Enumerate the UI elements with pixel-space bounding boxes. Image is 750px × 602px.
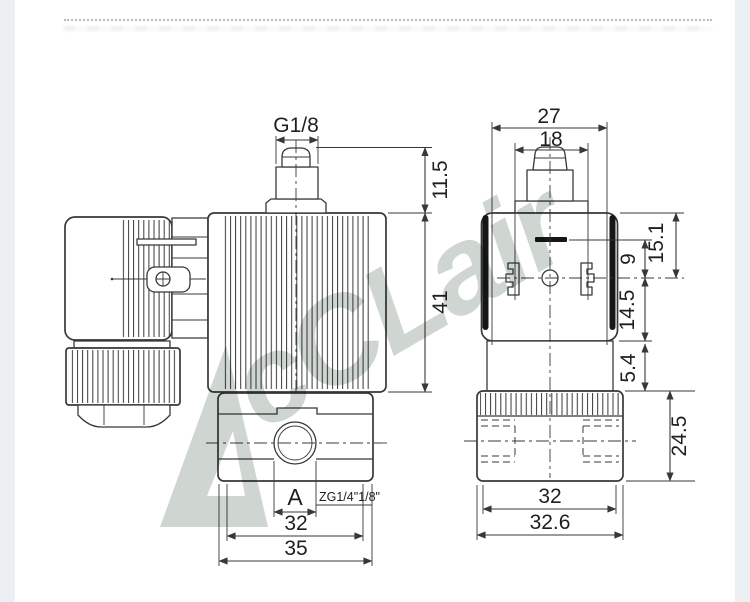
- din-connector-side: [65, 217, 208, 427]
- spade-terminal: [137, 239, 196, 245]
- fitting-collar: [276, 167, 318, 199]
- port-a-label: A: [287, 484, 303, 510]
- dim-15-1-label: 15.1: [645, 223, 668, 264]
- dim-9-label: 9: [617, 253, 640, 265]
- thread-note-label: ZG1/4"1/8": [319, 490, 380, 504]
- dim-5-4-label: 5.4: [617, 353, 640, 383]
- centerline-dot: [111, 278, 114, 281]
- screw-recess: [147, 267, 190, 292]
- dim-35-label: 35: [284, 537, 307, 560]
- dim-g18-label: G1/8: [273, 114, 319, 137]
- screw-icon: [156, 272, 170, 286]
- gland-neck: [74, 341, 170, 348]
- dim-18-label: 18: [539, 128, 562, 151]
- dim-27-label: 27: [537, 105, 560, 128]
- dim-32-label-left: 32: [284, 512, 307, 535]
- dim-24-5-label: 24.5: [668, 416, 691, 457]
- valve-dimension-drawing: G1/8 11.5 41 A ZG1/4"1/8": [0, 0, 750, 602]
- cable-gland-knurled-nut: [66, 348, 180, 405]
- right-black-band: [610, 215, 616, 330]
- dim-14-5-label: 14.5: [616, 290, 639, 331]
- dim-32-label-right: 32: [538, 485, 561, 508]
- gland-hex-nut: [78, 405, 170, 427]
- dim-32-6-label: 32.6: [530, 511, 571, 534]
- dim-11-5-label: 11.5: [429, 160, 452, 199]
